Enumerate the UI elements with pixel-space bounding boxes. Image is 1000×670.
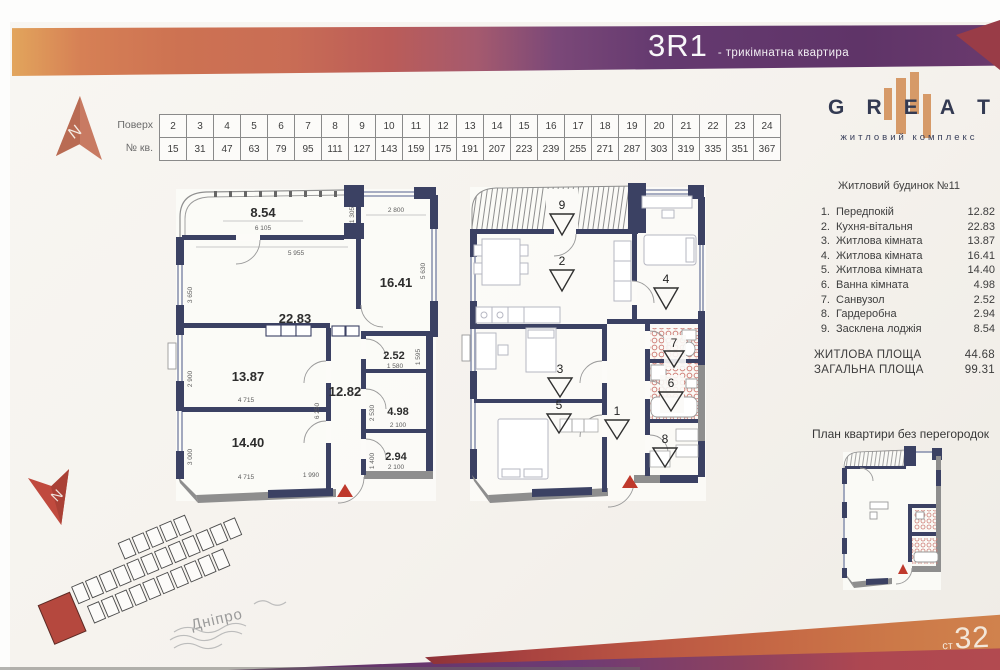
compass-south-icon: N xyxy=(22,464,90,536)
dim-label: 3 000 xyxy=(187,448,194,465)
wall xyxy=(602,324,607,492)
area-label: 8.54 xyxy=(250,205,276,220)
apt-cell: 191 xyxy=(457,138,484,161)
door-gap xyxy=(361,389,366,409)
kitchen-counter xyxy=(476,307,560,323)
rotated-arrow: N xyxy=(28,467,83,530)
door-gap xyxy=(632,281,637,305)
kitchen-island xyxy=(870,512,877,519)
dim-label: 5 955 xyxy=(288,250,305,257)
total-value: 44.68 xyxy=(965,348,995,363)
apartment-type-title: 3R1 - трикімнатна квартира xyxy=(648,28,849,64)
chair xyxy=(474,245,482,256)
room-number: 3 xyxy=(557,362,564,376)
scanned-floorplan-sheet: 3R1 - трикімнатна квартира N Поверх № кв… xyxy=(0,0,1000,670)
floor-cell: 15 xyxy=(511,115,538,138)
floor-cell: 14 xyxy=(484,115,511,138)
legend-area: 2.94 xyxy=(974,307,995,322)
wall xyxy=(912,566,941,572)
total-row: ЖИТЛОВА ПЛОЩА44.68 xyxy=(814,348,995,363)
legend-row: 2.Кухня-вітальня22.83 xyxy=(814,220,995,235)
area-totals: ЖИТЛОВА ПЛОЩА44.68 ЗАГАЛЬНА ПЛОЩА99.31 xyxy=(814,348,995,378)
wall xyxy=(648,419,698,423)
wall-pier xyxy=(176,451,184,479)
sink-burner xyxy=(481,312,487,318)
apt-row-label: № кв. xyxy=(97,137,153,160)
chair xyxy=(662,210,674,218)
floors-table-labels: Поверх № кв. xyxy=(97,114,159,161)
legend-num: 4. xyxy=(814,249,830,264)
legend-num: 3. xyxy=(814,234,830,249)
room-number: 8 xyxy=(662,432,669,446)
wall xyxy=(366,429,428,433)
legend-row: 1.Передпокій12.82 xyxy=(814,205,995,220)
floors-table: Поверх № кв. 234567891011121314151617181… xyxy=(97,114,781,161)
closet xyxy=(346,326,359,336)
floor-cell: 3 xyxy=(187,115,214,138)
pillow xyxy=(524,469,542,477)
area-label: 2.94 xyxy=(385,451,407,463)
legend-name: Житлова кімната xyxy=(836,263,967,278)
apt-cell: 271 xyxy=(592,138,619,161)
legend-area: 22.83 xyxy=(967,220,995,235)
door-gap xyxy=(326,421,331,443)
dim-label: 5 630 xyxy=(420,262,427,279)
legend-area: 14.40 xyxy=(967,263,995,278)
closet xyxy=(296,325,311,336)
legend-num: 6. xyxy=(814,278,830,293)
wall xyxy=(908,504,940,508)
dim-label: 2 100 xyxy=(388,464,405,471)
wall-pier xyxy=(866,578,888,585)
legend-area: 2.52 xyxy=(974,293,995,308)
wardrobe xyxy=(560,419,598,432)
area-label: 13.87 xyxy=(232,369,265,384)
dim-label: 1 580 xyxy=(387,363,404,370)
legend-name: Ванна кімната xyxy=(836,278,974,293)
legend-num: 8. xyxy=(814,307,830,322)
wall xyxy=(607,319,705,324)
floor-cell: 9 xyxy=(349,115,376,138)
ac-unit xyxy=(168,343,176,369)
wall xyxy=(356,195,361,309)
loggia-railing xyxy=(844,450,906,468)
floor-cell: 24 xyxy=(754,115,781,138)
apt-cell: 255 xyxy=(565,138,592,161)
area-label: 22.83 xyxy=(279,311,312,326)
bathtub xyxy=(914,552,938,562)
floors-grid: 23456789101112131415161718192021222324 1… xyxy=(159,114,781,161)
apartment-type-subtitle: - трикімнатна квартира xyxy=(718,47,849,59)
legend-num: 2. xyxy=(814,220,830,235)
apt-cell: 47 xyxy=(214,138,241,161)
wall-pier xyxy=(176,237,184,265)
legend-row: 9.Засклена лоджія8.54 xyxy=(814,322,995,337)
wardrobe-shelf xyxy=(676,445,698,457)
legend-row: 8.Гардеробна2.94 xyxy=(814,307,995,322)
wall-pier xyxy=(842,538,847,554)
wall xyxy=(426,335,433,475)
wall-pier xyxy=(660,475,698,483)
apt-cell: 143 xyxy=(376,138,403,161)
floor-cell: 13 xyxy=(457,115,484,138)
chair xyxy=(474,263,482,274)
legend-num: 1. xyxy=(814,205,830,220)
sink xyxy=(916,512,924,519)
pillow xyxy=(528,330,554,338)
floor-cell: 18 xyxy=(592,115,619,138)
area-label: 16.41 xyxy=(380,275,413,290)
logo-letter: A xyxy=(940,96,955,120)
floor-cell: 23 xyxy=(727,115,754,138)
dim-label: 6 105 xyxy=(255,225,272,232)
logo-letters: G R E A T xyxy=(828,96,990,120)
legend-row: 4.Житлова кімната16.41 xyxy=(814,249,995,264)
ac-unit xyxy=(462,335,470,361)
pillow xyxy=(686,238,694,262)
dim-label: 2 900 xyxy=(187,370,194,387)
legend-name: Житлова кімната xyxy=(836,234,967,249)
apt-cell: 159 xyxy=(403,138,430,161)
dim-label: 2 800 xyxy=(388,207,405,214)
wall-pier xyxy=(176,305,184,335)
wall-pier xyxy=(842,468,847,484)
apt-cell: 207 xyxy=(484,138,511,161)
dim-label: 1 305 xyxy=(349,206,356,223)
logo-letter: R xyxy=(866,96,881,120)
wall xyxy=(364,471,433,479)
page-num: 32 xyxy=(954,621,991,657)
closet xyxy=(266,325,281,336)
apt-cell: 31 xyxy=(187,138,214,161)
wall xyxy=(361,331,433,336)
total-row: ЗАГАЛЬНА ПЛОЩА99.31 xyxy=(814,363,995,378)
floorplan-furnished: 9 2 4 3 5 1 6 7 8 xyxy=(462,183,712,520)
legend-area: 8.54 xyxy=(974,322,995,337)
apt-cell: 335 xyxy=(700,138,727,161)
door-gap xyxy=(361,439,366,459)
dim-label: 4 715 xyxy=(238,474,255,481)
legend-name: Гардеробна xyxy=(836,307,974,322)
area-label: 12.82 xyxy=(329,384,362,399)
no-partitions-title: План квартири без перегородок xyxy=(812,427,998,441)
dim-label: 1 400 xyxy=(369,452,376,469)
apt-cell: 287 xyxy=(619,138,646,161)
floor-cell: 6 xyxy=(268,115,295,138)
apt-cell: 303 xyxy=(646,138,673,161)
apartment-type-code: 3R1 xyxy=(648,28,708,64)
door-gap xyxy=(361,339,366,359)
sofa xyxy=(614,241,631,301)
floor-cell: 7 xyxy=(295,115,322,138)
wardrobe-shelf xyxy=(676,429,698,441)
wall-pier xyxy=(430,195,438,229)
legend-num: 5. xyxy=(814,263,830,278)
dim-label: 1 595 xyxy=(415,348,422,365)
legend-num: 7. xyxy=(814,293,830,308)
door-gap xyxy=(602,415,607,437)
building-title: Житловий будинок №11 xyxy=(838,180,960,192)
wall xyxy=(910,532,940,536)
page-number: ст 32 xyxy=(941,621,991,657)
floorplan-no-partitions xyxy=(836,446,962,612)
logo-letter: E xyxy=(904,96,918,120)
legend-area: 4.98 xyxy=(974,278,995,293)
apt-cell: 367 xyxy=(754,138,781,161)
door-gap xyxy=(326,361,331,383)
dining-table xyxy=(482,239,520,285)
great-logo: G R E A T житловий комплекс xyxy=(828,84,990,156)
sink xyxy=(686,379,697,388)
wall xyxy=(474,399,602,403)
floor-cell: 10 xyxy=(376,115,403,138)
wall-pier xyxy=(842,568,847,578)
legend-name: Житлова кімната xyxy=(836,249,967,264)
logo-letter: G xyxy=(828,96,844,120)
room-number: 4 xyxy=(663,272,670,286)
legend-num: 9. xyxy=(814,322,830,337)
legend-name: Передпокій xyxy=(836,205,967,220)
floor-cell: 22 xyxy=(700,115,727,138)
legend-name: Засклена лоджія xyxy=(836,322,974,337)
legend-area: 12.82 xyxy=(967,205,995,220)
wall xyxy=(698,365,705,441)
logo-subtitle: житловий комплекс xyxy=(828,132,990,143)
legend-row: 5.Житлова кімната14.40 xyxy=(814,263,995,278)
door-gap xyxy=(645,381,650,399)
logo-letter: T xyxy=(977,96,990,120)
legend-row: 7.Санвузол2.52 xyxy=(814,293,995,308)
floor-cell: 4 xyxy=(214,115,241,138)
wall-pier xyxy=(698,441,705,477)
page-prefix: ст xyxy=(942,640,953,653)
room-number: 7 xyxy=(671,336,678,350)
floor-cell: 20 xyxy=(646,115,673,138)
apt-cell: 127 xyxy=(349,138,376,161)
closet xyxy=(281,325,296,336)
wall-pier xyxy=(470,371,477,399)
kitchen-island xyxy=(870,502,888,509)
apt-cell: 319 xyxy=(673,138,700,161)
area-label: 14.40 xyxy=(232,435,265,450)
wall xyxy=(182,235,344,240)
chair xyxy=(498,345,508,355)
apt-cell: 175 xyxy=(430,138,457,161)
apt-cell: 95 xyxy=(295,138,322,161)
wall-pier xyxy=(176,381,184,411)
floor-cell: 5 xyxy=(241,115,268,138)
desk xyxy=(642,196,692,208)
legend-area: 13.87 xyxy=(967,234,995,249)
sink-burner xyxy=(497,312,503,318)
apt-cell: 223 xyxy=(511,138,538,161)
total-label: ЗАГАЛЬНА ПЛОЩА xyxy=(814,363,965,378)
site-plan: Дніпро xyxy=(22,520,302,668)
wall-pier xyxy=(842,502,847,518)
wall-pier xyxy=(904,446,916,466)
room-number: 2 xyxy=(559,254,566,268)
room-number: 6 xyxy=(668,376,675,390)
floor-row-label: Поверх xyxy=(97,114,153,137)
floor-cell: 16 xyxy=(538,115,565,138)
dim-label: 4 715 xyxy=(238,397,255,404)
floorplan-dimensioned: 8.54 6 105 1 305 2 800 5 955 5 630 22.83… xyxy=(168,183,444,520)
room-number: 5 xyxy=(556,398,563,412)
dim-label: 3 650 xyxy=(187,286,194,303)
apt-cell: 63 xyxy=(241,138,268,161)
legend-area: 16.41 xyxy=(967,249,995,264)
door-gap xyxy=(645,331,650,349)
legend-row: 6.Ванна кімната4.98 xyxy=(814,278,995,293)
floor-cell: 11 xyxy=(403,115,430,138)
room-number: 1 xyxy=(614,404,621,418)
room-legend: 1.Передпокій12.82 2.Кухня-вітальня22.83 … xyxy=(814,205,995,378)
dim-label: 6 250 xyxy=(314,402,321,419)
apt-cell: 239 xyxy=(538,138,565,161)
wall xyxy=(182,407,328,412)
floor-cell: 19 xyxy=(619,115,646,138)
total-label: ЖИТЛОВА ПЛОЩА xyxy=(814,348,965,363)
apt-cell: 15 xyxy=(160,138,187,161)
wall-pier xyxy=(698,197,705,245)
apt-cell: 79 xyxy=(268,138,295,161)
wall-pier xyxy=(470,449,477,479)
legend-row: 3.Житлова кімната13.87 xyxy=(814,234,995,249)
dim-label: 2 100 xyxy=(390,422,407,429)
closet xyxy=(332,326,345,336)
apt-cell: 351 xyxy=(727,138,754,161)
apt-cell: 111 xyxy=(322,138,349,161)
door-gap xyxy=(645,435,650,453)
legend-name: Кухня-вітальня xyxy=(836,220,967,235)
floor-cell: 12 xyxy=(430,115,457,138)
door-gap xyxy=(236,234,260,241)
chair xyxy=(520,263,528,274)
area-label: 4.98 xyxy=(387,406,408,418)
room-number: 9 xyxy=(559,198,566,212)
area-label: 2.52 xyxy=(383,350,404,362)
chair xyxy=(520,245,528,256)
total-value: 99.31 xyxy=(965,363,995,378)
wall xyxy=(845,466,906,469)
floor-cell: 21 xyxy=(673,115,700,138)
pillow xyxy=(502,469,520,477)
floor-cell: 2 xyxy=(160,115,187,138)
desk xyxy=(476,333,496,369)
dim-label: 2 530 xyxy=(369,404,376,421)
legend-name: Санвузол xyxy=(836,293,974,308)
floor-cell: 17 xyxy=(565,115,592,138)
floor-cell: 8 xyxy=(322,115,349,138)
wall-pier xyxy=(936,470,941,486)
dim-label: 1 990 xyxy=(303,472,320,479)
door-gap xyxy=(602,361,607,383)
